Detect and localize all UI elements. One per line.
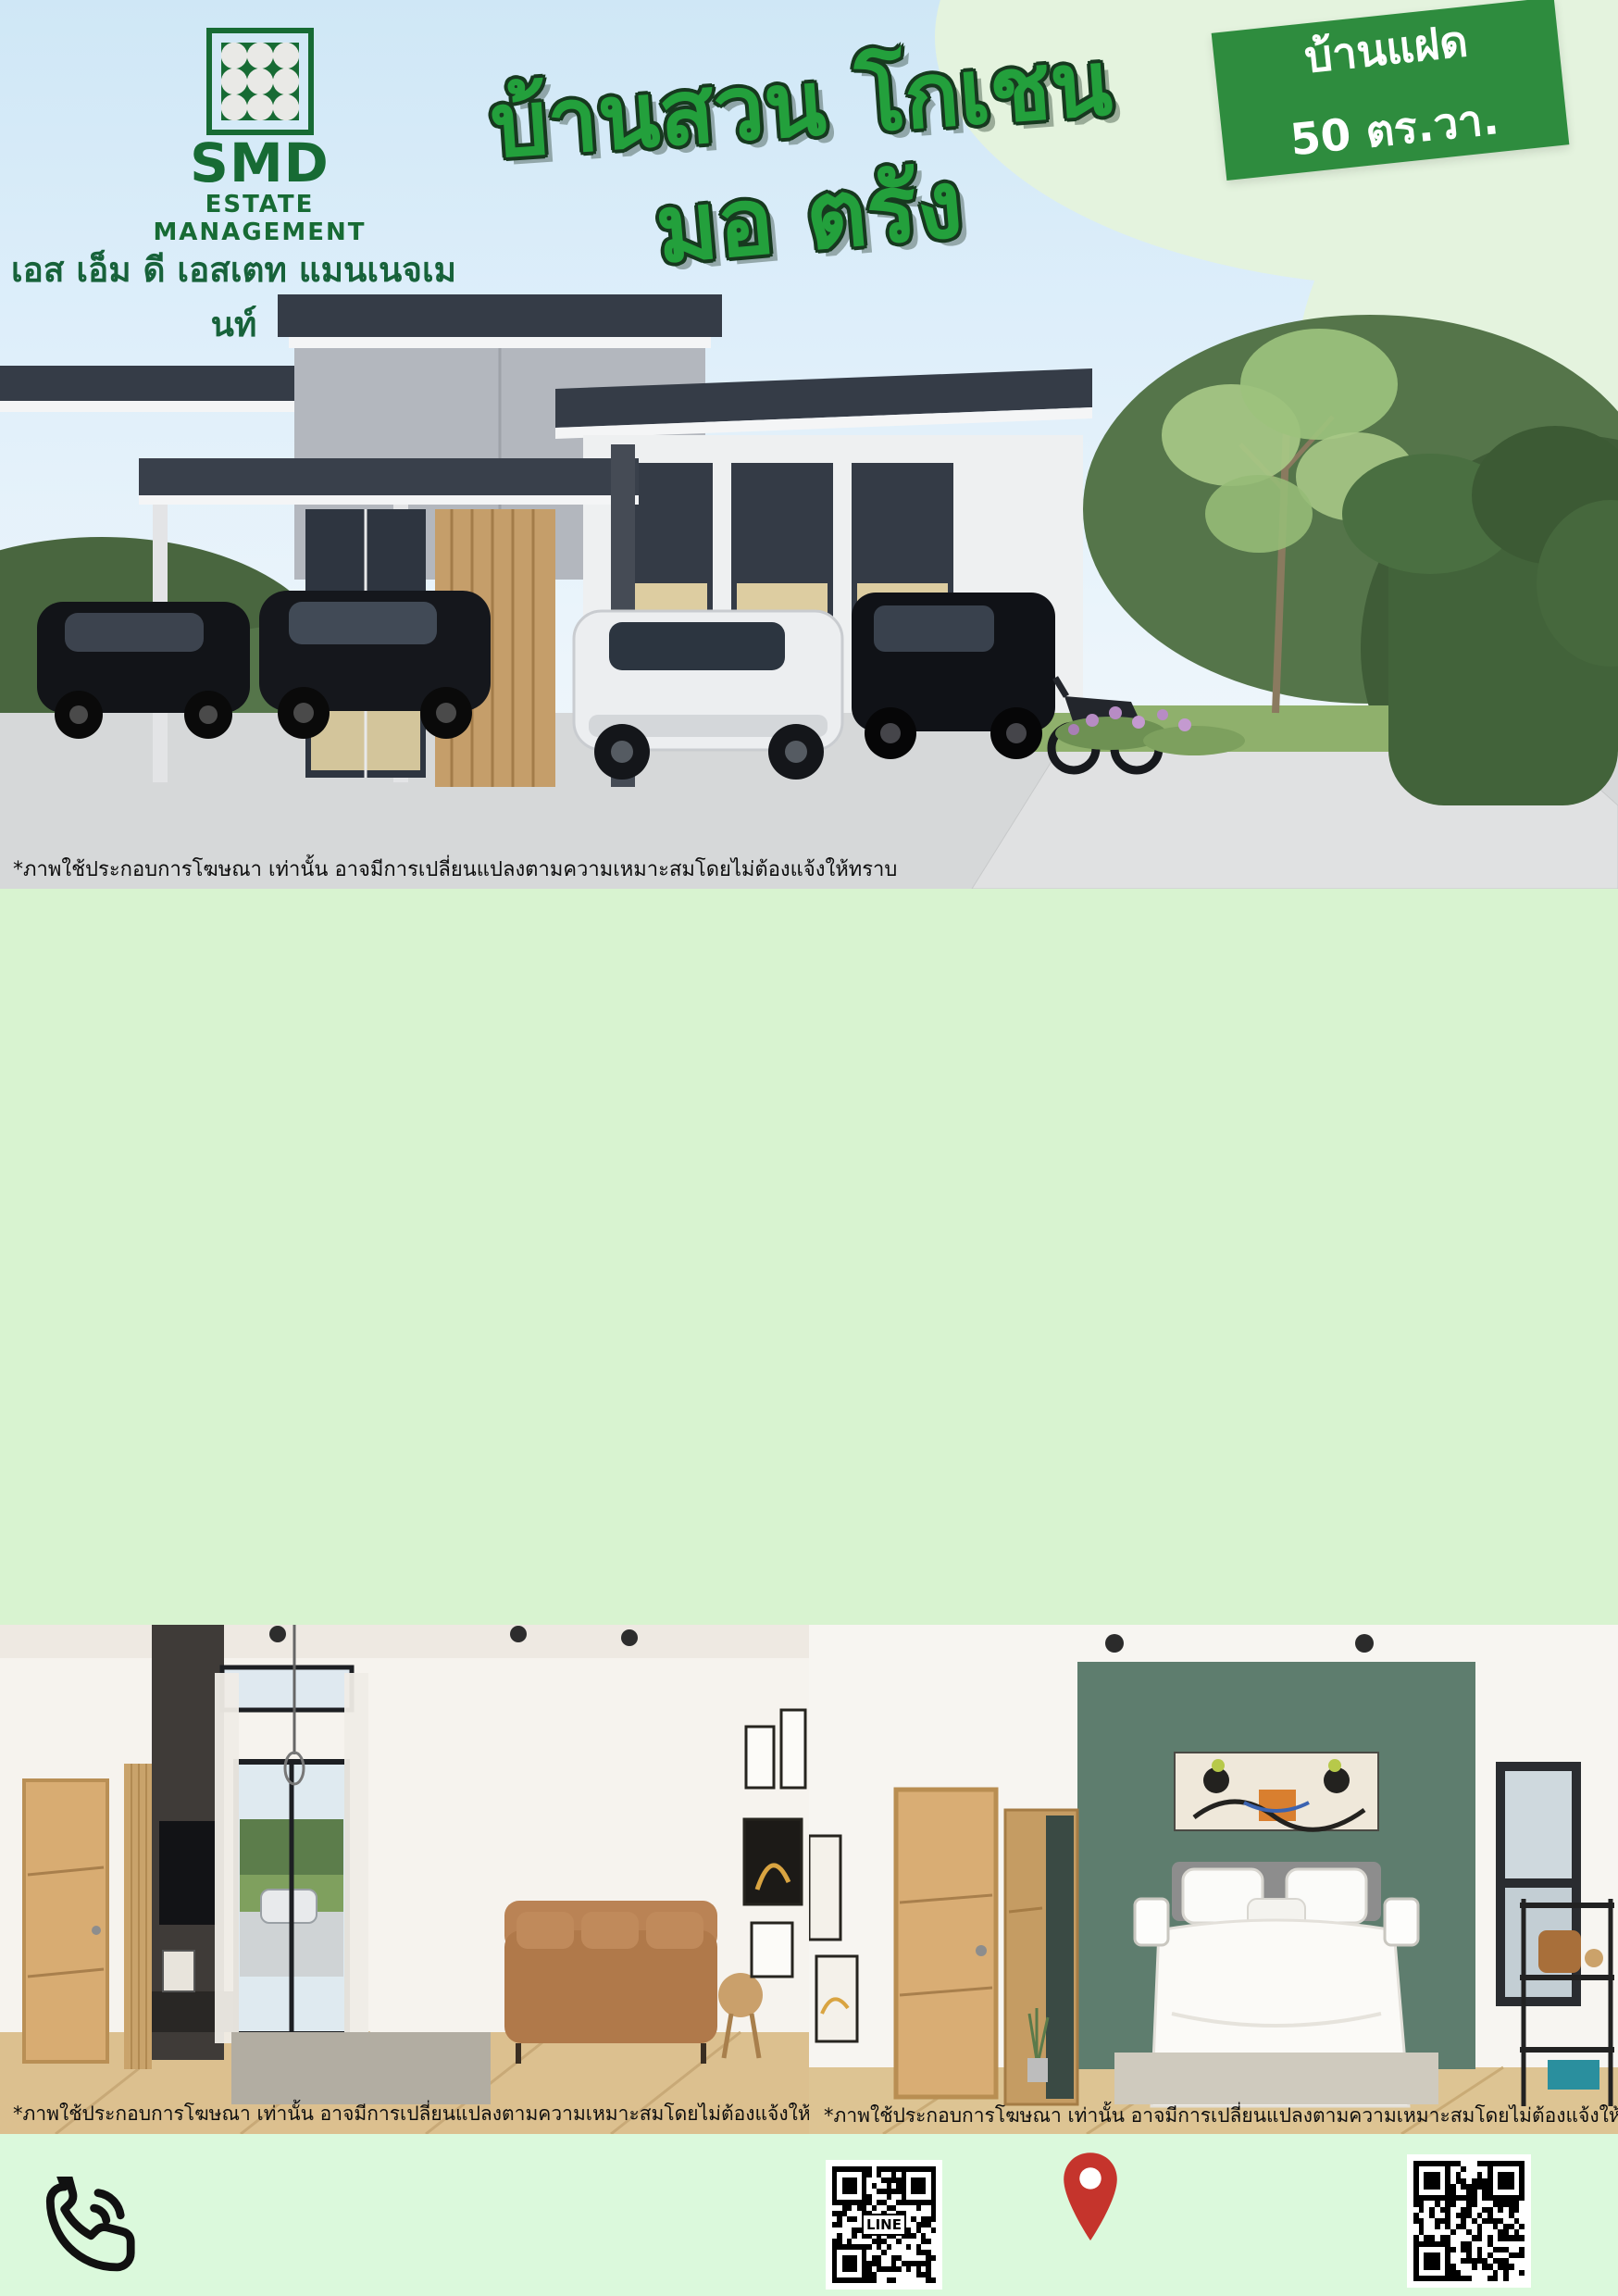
bedroom-illustration: [809, 1625, 1618, 2134]
interior-photo-bedroom: *ภาพใช้ประกอบการโฆษณา เท่านั้น อาจมีการเ…: [809, 1625, 1618, 2134]
phone-icon: [37, 2177, 139, 2278]
interior-photo-living-room: *ภาพใช้ประกอบการโฆษณา เท่านั้น อาจมีการเ…: [0, 1625, 809, 2134]
promo-section: ซักล้าง ครัว ห้องน้ำ 2 ห้องนอน 2 เก็บของ…: [0, 889, 1618, 1625]
storage-box: [1548, 2060, 1599, 2090]
qr-line-label: LINE: [862, 2214, 906, 2236]
curtain-right: [344, 1673, 368, 2043]
leather-bag: [1538, 1930, 1581, 1973]
rug: [1114, 2053, 1438, 2104]
logo-subtitle-estate: ESTATE: [205, 191, 315, 218]
house-render-illustration: [0, 278, 1618, 889]
location-pin-icon: [1061, 2151, 1120, 2267]
abstract-artwork: [1175, 1753, 1378, 1830]
interior-disclaimer-right: *ภาพใช้ประกอบการโฆษณา เท่านั้น อาจมีการเ…: [824, 2101, 1618, 2131]
side-stool: [718, 1973, 763, 2017]
wall-lamp-right: [1385, 1899, 1418, 1945]
glass-door-garden-view: [215, 1625, 368, 2043]
real-estate-flyer: SMD ESTATE MANAGEMENT เอส เอ็ม ดี เอสเตท…: [0, 0, 1618, 2296]
living-room-illustration: [0, 1625, 809, 2134]
wooden-door: [24, 1780, 107, 2062]
map-qr-code: [1407, 2154, 1531, 2288]
footer-contact-bar: 084-246 0959 098-444 7190 LINE @SMDESTAT…: [0, 2134, 1618, 2296]
tv-screen: [159, 1821, 217, 1925]
company-logo: SMD ESTATE MANAGEMENT: [146, 28, 373, 247]
wooden-door: [896, 1790, 996, 2097]
wardrobe-mirror: [1046, 1816, 1074, 2099]
smd-logo-mark: [206, 28, 314, 135]
project-title: บ้านสวน โกเชน มอ ตรัง: [419, 25, 1192, 302]
interior-disclaimer-left: *ภาพใช้ประกอบการโฆษณา เท่านั้น อาจมีการเ…: [13, 2099, 809, 2129]
company-name-thai: เอส เอ็ม ดี เอสเตท แมนเนจเมนท์: [0, 243, 467, 352]
wall-lamp-left: [1135, 1899, 1168, 1945]
hero-section: SMD ESTATE MANAGEMENT เอส เอ็ม ดี เอสเตท…: [0, 0, 1618, 889]
logo-name: SMD: [190, 131, 330, 194]
hero-disclaimer: *ภาพใช้ประกอบการโฆษณา เท่านั้น อาจมีการเ…: [13, 853, 897, 885]
rug: [231, 2032, 491, 2104]
line-qr-code: LINE: [826, 2160, 942, 2290]
curtain-left: [215, 1673, 239, 2043]
